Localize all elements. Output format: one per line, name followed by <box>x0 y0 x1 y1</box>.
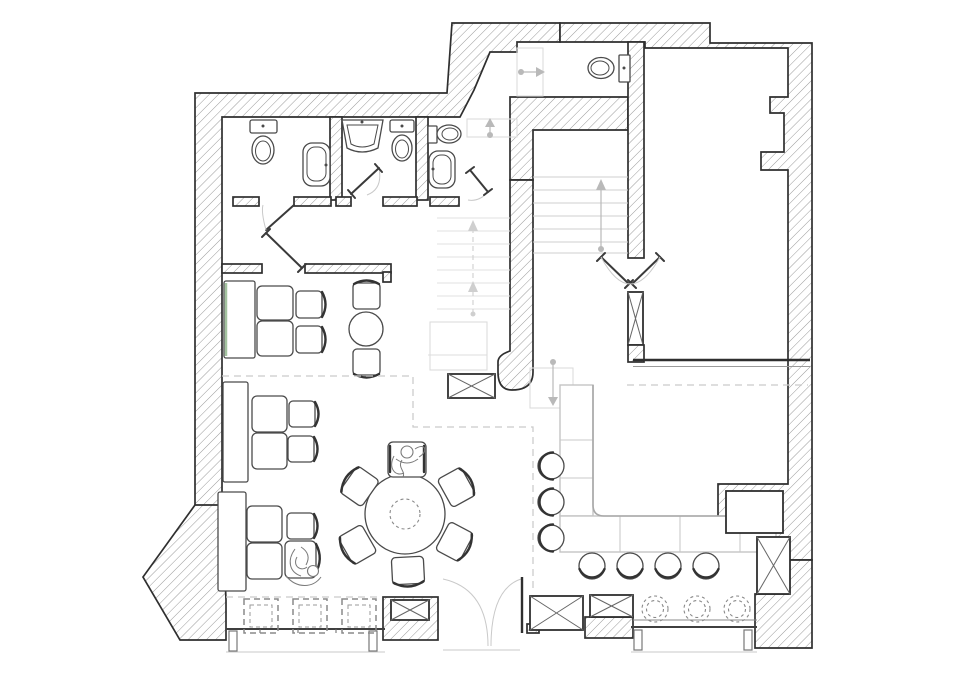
door-entry-swing-left <box>443 579 488 646</box>
toilet-stall2-button <box>401 125 404 128</box>
person-2-head <box>308 566 319 577</box>
flow-arrow-down-head <box>548 397 558 406</box>
dashed-table-3-inner <box>348 605 370 627</box>
stair-main-arrow-head <box>596 179 606 190</box>
door-stall1-leaf <box>266 205 294 230</box>
counter-vertical <box>560 385 593 516</box>
stair-main-arrow-dot <box>598 246 604 252</box>
wall-stub-1 <box>233 197 259 206</box>
wall-lobby-step <box>383 272 391 282</box>
wall-stair-left <box>498 180 533 390</box>
sink-stall2-faucet <box>361 121 364 124</box>
wall-stub-4 <box>383 197 417 206</box>
wall-bar-hatched-block <box>585 617 633 638</box>
door-lobby-leaf <box>266 233 302 268</box>
chair-b2 <box>288 436 314 462</box>
stool-dashed-1-outer <box>642 596 668 622</box>
stair-2-landing <box>430 322 487 370</box>
window-post-left-2 <box>369 631 377 651</box>
flow-arrow-up-dot <box>487 132 493 138</box>
dashed-table-1-inner <box>250 605 272 627</box>
dashed-table-3-outer <box>342 599 376 633</box>
chair-a3 <box>353 283 380 309</box>
floor-plan-svg <box>0 0 960 678</box>
stool-dashed-3-inner <box>729 601 746 618</box>
bench-c <box>218 492 246 591</box>
sink-stall1-faucet <box>325 164 328 167</box>
door-stairhall-leaf-left <box>601 257 629 284</box>
door-stairhall-leaf-right <box>632 257 660 284</box>
dashed-table-1-outer <box>244 599 278 633</box>
stool-dashed-2-inner <box>689 601 706 618</box>
sofa-a-cushion-2 <box>257 321 293 356</box>
floor-plan-layers <box>143 23 812 652</box>
table-round-large <box>365 474 445 554</box>
dashed-table-2-inner <box>299 605 321 627</box>
person-1-head <box>401 446 413 458</box>
wall-wc-partition-1 <box>330 117 342 200</box>
flow-arrow-right-head <box>536 67 545 77</box>
window-post-right-1 <box>634 630 642 650</box>
toilet-wc-top-button <box>623 67 626 70</box>
chair-a2 <box>296 326 322 353</box>
window-post-right-2 <box>744 630 752 650</box>
chair-seat <box>391 556 424 585</box>
stool-dashed-3-outer <box>724 596 750 622</box>
sofa-b-cushion-2 <box>252 433 287 469</box>
sofa-c-cushion-2 <box>247 543 282 579</box>
door-stall3-leaf <box>470 170 488 192</box>
flow-arrow-right-dot <box>518 69 524 75</box>
wall-lobby-left <box>222 264 262 273</box>
wall-lobby-right <box>305 264 391 273</box>
chair-c1 <box>287 513 314 539</box>
wall-stair-top <box>510 97 628 180</box>
table-round-small <box>349 312 383 346</box>
sofa-a-cushion-1 <box>257 286 293 320</box>
wall-wc-partition-2 <box>416 117 428 200</box>
door-entry-swing-right <box>491 579 521 646</box>
door-stairhall-swing <box>601 257 660 284</box>
chair-b1 <box>289 401 315 427</box>
stair-2-dot <box>471 312 476 317</box>
window-post-left-1 <box>229 631 237 651</box>
dashed-table-2-outer <box>293 599 327 633</box>
bench-a <box>224 281 255 358</box>
sofa-b-cushion-1 <box>252 396 287 432</box>
toilet-stall2-bowl <box>392 135 412 161</box>
sink-stall3-faucet <box>432 168 435 171</box>
wall-left-chamfer <box>143 505 226 640</box>
chair-round-bottom <box>391 556 425 587</box>
wall-stub-3 <box>336 197 351 206</box>
toilet-stall3-tank <box>428 126 437 143</box>
floor-plan-page <box>0 0 960 678</box>
flow-arrow-down-dot <box>550 359 556 365</box>
stool-dashed-2-outer <box>684 596 710 622</box>
sofa-c-cushion-1 <box>247 506 282 542</box>
wall-niche-opening <box>726 491 783 533</box>
bench-b <box>223 382 248 482</box>
stool-dashed-1-inner <box>647 601 664 618</box>
wall-stub-2 <box>294 197 331 206</box>
toilet-stall1-button <box>262 125 265 128</box>
door-stall1-swing <box>262 205 266 230</box>
chair-a4 <box>353 349 380 375</box>
stair-2-arrow-head-top <box>468 220 478 231</box>
chair-a1 <box>296 291 322 318</box>
wall-stub-5 <box>430 197 459 206</box>
